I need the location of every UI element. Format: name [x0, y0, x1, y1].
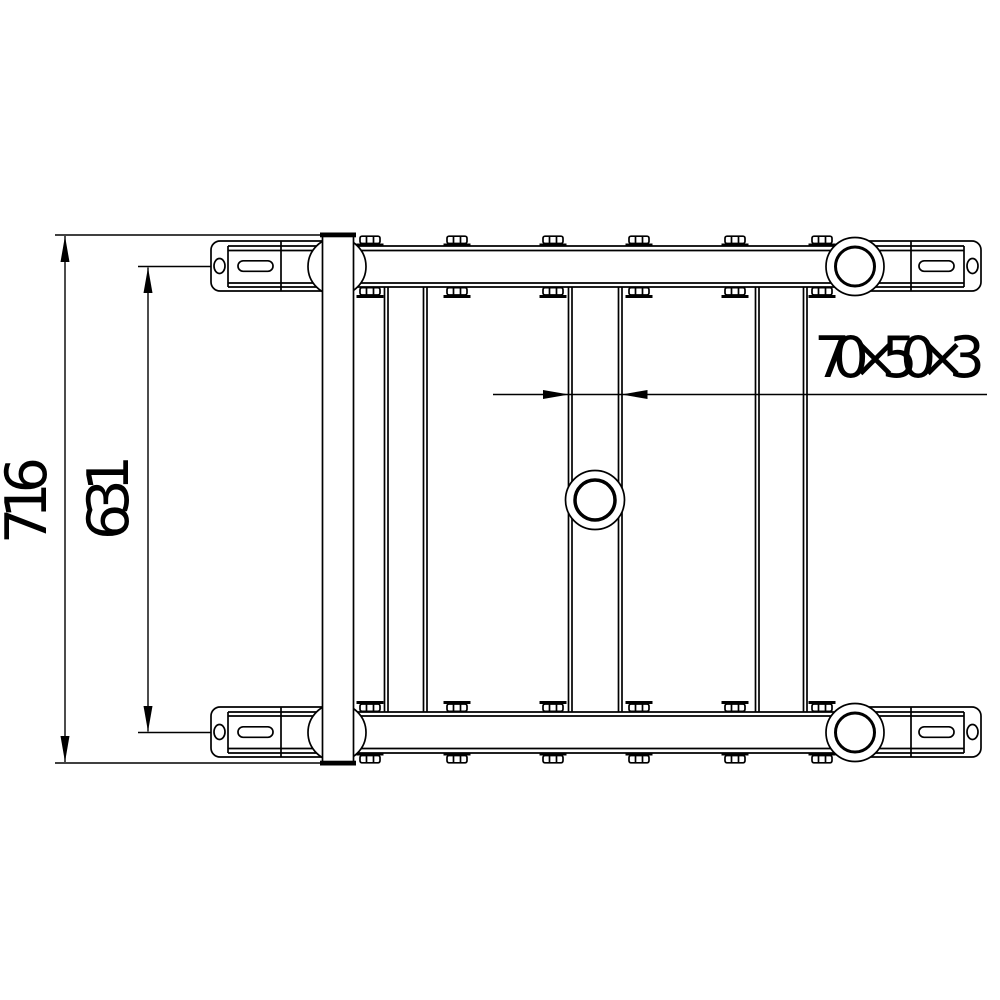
crossbar-tube-right — [756, 287, 808, 712]
right-pipe-collars — [826, 238, 884, 762]
dimension-631-label: 631 — [76, 454, 142, 540]
bar-bottom-cap — [320, 761, 356, 766]
dimension-631: 631 — [76, 267, 211, 733]
crossbar-tube-left — [385, 287, 428, 712]
dimension-716-label: 716 — [0, 456, 60, 544]
drawing-canvas: 716 631 70×50×3 — [0, 0, 1000, 1000]
dimension-profile-label: 70×50×3 — [814, 325, 986, 391]
dimension-profile: 70×50×3 — [493, 325, 987, 399]
frame-assembly-drawing: 716 631 70×50×3 — [0, 0, 1000, 1000]
extension-lines-631 — [138, 267, 211, 733]
dimension-716: 716 — [0, 235, 322, 763]
center-pipe-collar — [566, 471, 625, 530]
left-upright-bar — [320, 233, 356, 766]
bar-top-cap — [320, 233, 356, 238]
